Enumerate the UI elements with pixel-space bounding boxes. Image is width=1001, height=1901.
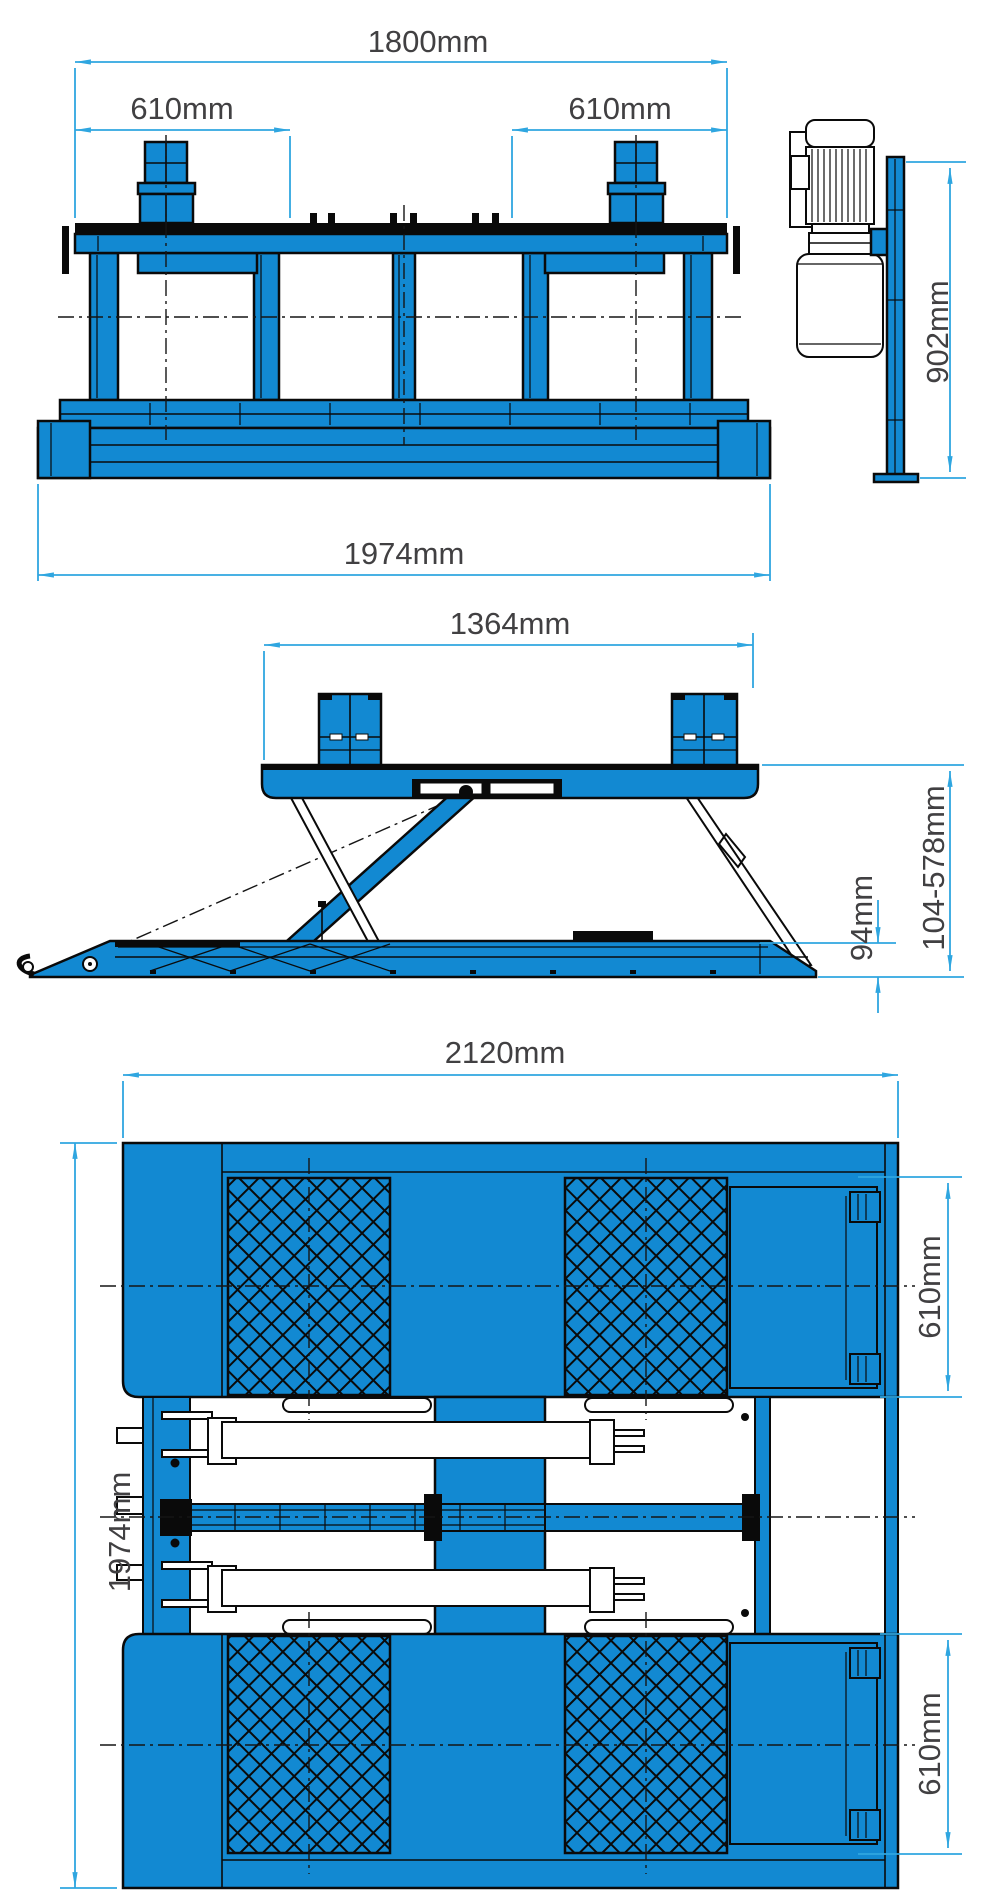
dim-power-unit-height: 902mm [906,162,966,478]
dim-label-1974-front: 1974mm [344,536,465,571]
dim-label-610-left: 610mm [130,91,233,126]
dim-label-1800: 1800mm [368,24,489,59]
dim-lowered-height: 94mm [760,875,896,1013]
dim-label-94: 94mm [844,875,879,961]
runway-slot [585,1620,733,1634]
dim-label-610-top: 610mm [912,1235,947,1338]
view-power-unit: 902mm [790,120,966,482]
extension-platform-top [730,1187,880,1388]
column-foot [874,474,918,482]
arm-pivot [459,785,473,799]
dim-label-610-right: 610mm [568,91,671,126]
view-plan: 2120mm 1974mm 610mm 610mm [60,1035,962,1888]
plan-top-runway [123,1143,898,1397]
raised-platform [262,765,758,799]
dim-plan-overall-length: 2120mm [123,1035,898,1138]
dim-label-2120: 2120mm [445,1035,566,1070]
travel-centerline [110,795,462,950]
scissor-lift-drawing: 1800mm 610mm 610mm 1974mm [0,0,1001,1901]
dim-label-1364: 1364mm [450,606,571,641]
runway-slot [283,1398,431,1412]
motor-junction-box [791,156,809,189]
extension-platform-bottom [730,1643,880,1844]
base-frame-side [19,901,816,977]
runway-slot [283,1620,431,1634]
left-pad-adapter [138,142,195,223]
dim-label-902: 902mm [920,280,955,383]
lift-legs [90,253,712,400]
left-support-block [319,694,381,765]
right-rail [885,1397,898,1634]
right-pad-adapter [608,142,665,223]
plan-bottom-runway [123,1634,898,1888]
dim-label-610-bottom: 610mm [912,1692,947,1795]
dim-label-1974-plan: 1974mm [102,1472,137,1593]
dim-label-104-578: 104-578mm [916,785,951,950]
right-support-block [672,694,737,765]
runway-slot [585,1398,733,1412]
hydraulic-cylinder-bottom [162,1562,644,1612]
hydraulic-cylinder-top [162,1412,644,1464]
dim-front-base-width: 1974mm [38,484,770,581]
technical-drawing-page: 1800mm 610mm 610mm 1974mm [0,0,1001,1901]
view-front-lowered: 1800mm 610mm 610mm 1974mm [38,24,770,581]
view-side-raised: 1364mm 104-578mm 94mm [19,606,964,1013]
plan-middle-section [117,1397,898,1634]
front-scissor-arm [288,784,479,949]
